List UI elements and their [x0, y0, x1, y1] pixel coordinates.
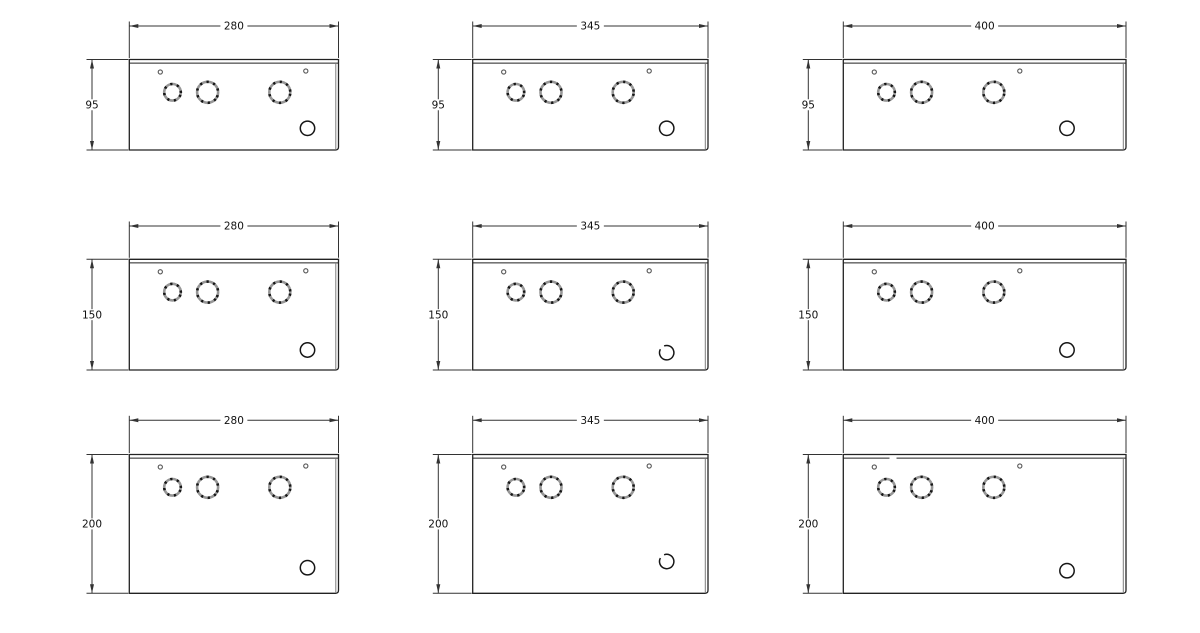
- enclosure-drawing-r2c3: 400150: [796, 221, 1126, 371]
- screw-hole: [304, 269, 308, 273]
- enclosure-outline: [473, 455, 708, 594]
- cable-entry-hole: [1060, 564, 1074, 578]
- width-dimension: 280: [129, 415, 338, 453]
- enclosure-outline: [129, 259, 338, 370]
- dimension-arrow: [330, 24, 339, 28]
- screw-hole: [158, 70, 162, 74]
- screw-hole: [872, 465, 876, 469]
- height-dim-label: 95: [432, 99, 445, 111]
- width-dim-label: 280: [224, 221, 244, 233]
- enclosure-drawing-r1c2: 34595: [430, 21, 708, 151]
- screw-hole: [502, 465, 506, 469]
- enclosure-outline: [843, 60, 1126, 151]
- screw-hole: [502, 270, 506, 274]
- dimension-arrow: [330, 418, 339, 422]
- width-dim-label: 400: [975, 221, 995, 233]
- dimension-arrow: [699, 418, 708, 422]
- height-dim-label: 95: [802, 99, 815, 111]
- width-dim-label: 400: [975, 21, 995, 33]
- enclosure-drawing-r3c1: 280200: [80, 415, 338, 594]
- technical-drawing-svg: 2809534595400952801503451504001502802003…: [0, 0, 1200, 633]
- dimension-arrow: [90, 455, 94, 464]
- cable-entry-hole: [1060, 343, 1074, 357]
- dimension-arrow: [436, 60, 440, 69]
- enclosure-outline: [473, 60, 708, 151]
- cable-entry-hole: [1060, 121, 1074, 135]
- enclosure-drawing-r3c2: 345200: [426, 415, 708, 594]
- width-dimension: 280: [129, 221, 338, 258]
- height-dimension: 95: [430, 60, 472, 151]
- cable-entry-hole: [300, 561, 314, 575]
- height-dimension: 200: [796, 455, 842, 594]
- cable-entry-hole: [660, 121, 674, 135]
- dimension-arrow: [843, 24, 852, 28]
- width-dim-label: 345: [580, 415, 600, 427]
- dimension-arrow: [436, 259, 440, 268]
- dimension-arrow: [1117, 418, 1126, 422]
- dimension-arrow: [699, 224, 708, 228]
- height-dimension: 200: [80, 455, 128, 594]
- dimension-arrow: [806, 584, 810, 593]
- width-dim-label: 345: [580, 21, 600, 33]
- dimension-arrow: [806, 141, 810, 150]
- screw-hole: [304, 69, 308, 73]
- height-dimension: 150: [80, 259, 128, 370]
- width-dimension: 400: [843, 415, 1126, 453]
- screw-hole: [647, 269, 651, 273]
- screw-hole: [647, 69, 651, 73]
- dimension-arrow: [436, 584, 440, 593]
- width-dimension: 280: [129, 21, 338, 59]
- dimension-arrow: [90, 361, 94, 370]
- dimension-arrow: [90, 141, 94, 150]
- height-dimension: 150: [426, 259, 471, 370]
- dimension-arrow: [90, 584, 94, 593]
- enclosure-drawing-r3c3: 400200: [796, 415, 1126, 594]
- height-dim-label: 200: [798, 519, 818, 531]
- dimension-arrow: [129, 418, 138, 422]
- height-dimension: 95: [83, 60, 128, 151]
- screw-hole: [158, 465, 162, 469]
- enclosure-drawing-r2c1: 280150: [80, 221, 338, 371]
- dimension-arrow: [1117, 24, 1126, 28]
- width-dim-label: 280: [224, 415, 244, 427]
- screw-hole: [304, 464, 308, 468]
- cable-entry-hole: [657, 552, 676, 571]
- screw-hole: [872, 270, 876, 274]
- width-dimension: 345: [473, 21, 708, 59]
- dimension-arrow: [806, 60, 810, 69]
- enclosure-outline: [129, 455, 338, 594]
- dimension-arrow: [843, 224, 852, 228]
- dimension-arrow: [843, 418, 852, 422]
- dimension-arrow: [699, 24, 708, 28]
- width-dimension: 400: [843, 221, 1126, 258]
- height-dimension: 200: [426, 455, 471, 594]
- dimension-arrow: [473, 224, 482, 228]
- enclosure-outline: [473, 259, 708, 370]
- height-dim-label: 95: [85, 99, 98, 111]
- screw-hole: [647, 464, 651, 468]
- dimension-arrow: [1117, 224, 1126, 228]
- height-dimension: 150: [796, 259, 842, 370]
- screw-hole: [158, 270, 162, 274]
- width-dim-label: 280: [224, 21, 244, 33]
- enclosure-drawing-r1c1: 28095: [83, 21, 338, 151]
- dimension-arrow: [806, 361, 810, 370]
- height-dim-label: 200: [82, 519, 102, 531]
- height-dim-label: 150: [428, 309, 448, 321]
- enclosure-outline: [843, 455, 1126, 594]
- screw-hole: [1018, 269, 1022, 273]
- width-dimension: 400: [843, 21, 1126, 59]
- dimension-arrow: [436, 361, 440, 370]
- screw-hole: [1018, 464, 1022, 468]
- cable-entry-hole: [300, 343, 314, 357]
- width-dimension: 345: [473, 415, 708, 453]
- dimension-arrow: [436, 455, 440, 464]
- height-dim-label: 150: [82, 309, 102, 321]
- enclosure-outline: [843, 259, 1126, 370]
- height-dim-label: 200: [428, 519, 448, 531]
- dimension-arrow: [129, 24, 138, 28]
- screw-hole: [502, 70, 506, 74]
- dimension-arrow: [90, 259, 94, 268]
- screw-hole: [1018, 69, 1022, 73]
- dimension-arrow: [90, 60, 94, 69]
- cable-entry-hole: [300, 121, 314, 135]
- technical-drawing-canvas: 2809534595400952801503451504001502802003…: [0, 0, 1200, 633]
- width-dimension: 345: [473, 221, 708, 258]
- enclosure-drawing-r1c3: 40095: [800, 21, 1126, 151]
- enclosure-drawing-r2c2: 345150: [426, 221, 708, 371]
- dimension-arrow: [473, 418, 482, 422]
- height-dim-label: 150: [798, 309, 818, 321]
- screw-hole: [872, 70, 876, 74]
- dimension-arrow: [473, 24, 482, 28]
- height-dimension: 95: [800, 60, 843, 151]
- width-dim-label: 400: [975, 415, 995, 427]
- dimension-arrow: [806, 455, 810, 464]
- dimension-arrow: [129, 224, 138, 228]
- dimension-arrow: [330, 224, 339, 228]
- dimension-arrow: [436, 141, 440, 150]
- width-dim-label: 345: [580, 221, 600, 233]
- dimension-arrow: [806, 259, 810, 268]
- cable-entry-hole: [657, 343, 676, 362]
